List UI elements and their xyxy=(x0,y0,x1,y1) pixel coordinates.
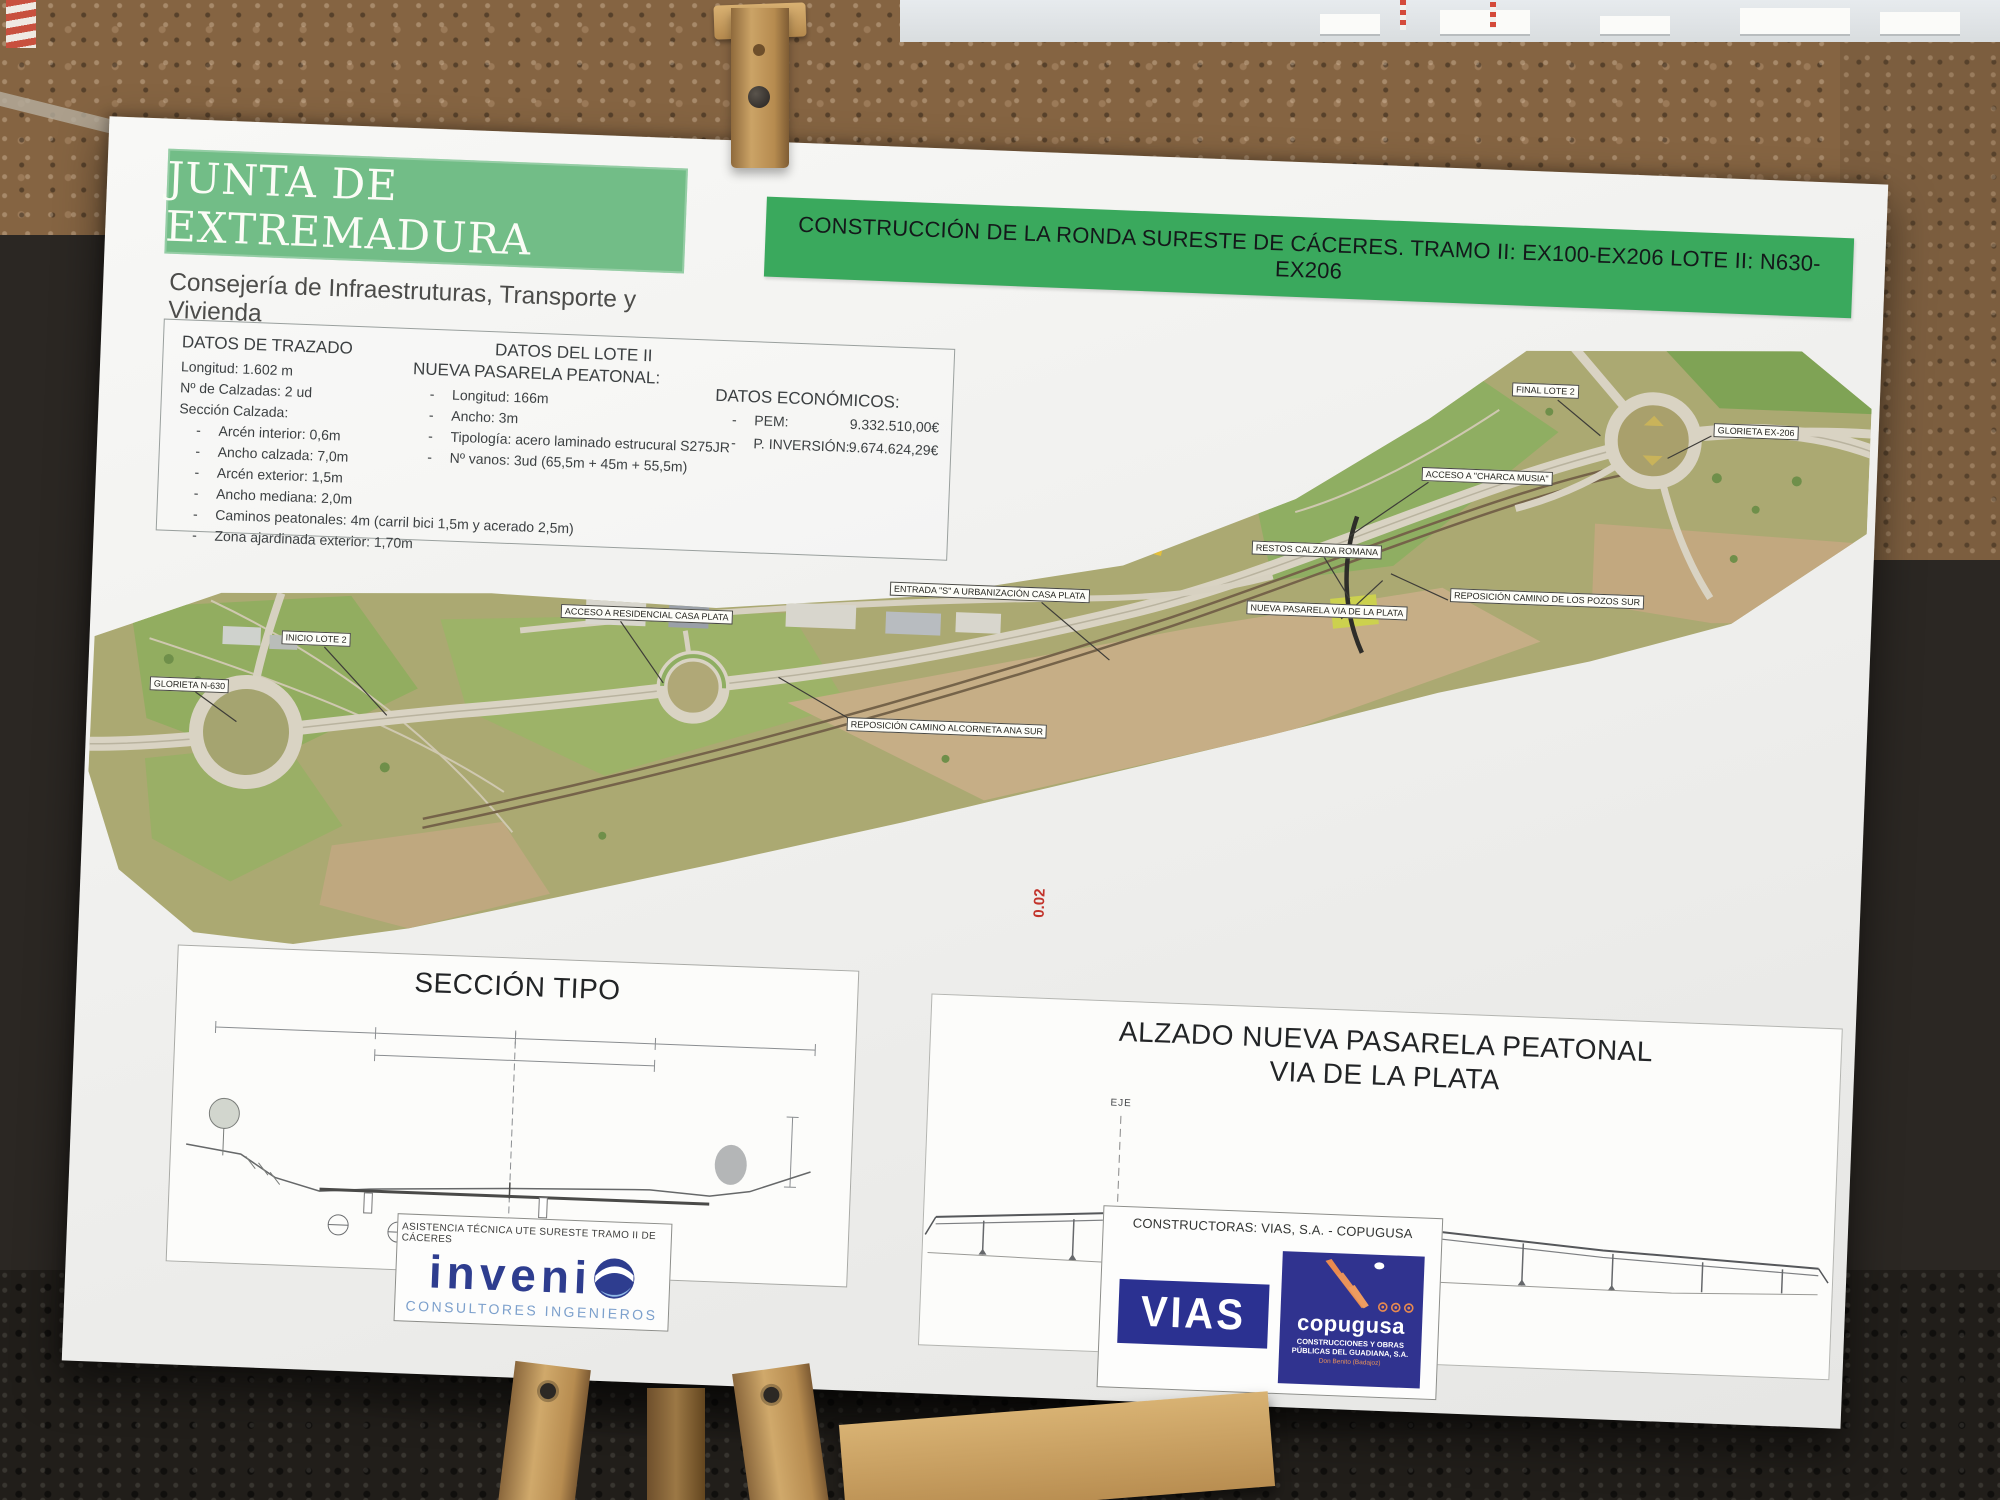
easel-leg-center xyxy=(647,1388,705,1500)
dash: - xyxy=(177,442,218,460)
roundabout-central xyxy=(661,655,725,719)
dash: - xyxy=(412,385,453,403)
econ-value: 9.332.510,00€ xyxy=(849,416,939,435)
slope-annotation: 0.02 xyxy=(1031,888,1049,918)
striped-mast xyxy=(6,0,36,48)
datos-trazado-line: Nº de Calzadas: 2 ud xyxy=(180,379,312,400)
dash: - xyxy=(178,421,219,439)
copugusa-logo: copugusa CONSTRUCCIONES Y OBRAS PÚBLICAS… xyxy=(1278,1251,1425,1388)
copugusa-wordmark: copugusa xyxy=(1297,1312,1406,1338)
dash: - xyxy=(177,463,218,481)
constructoras-box: CONSTRUCTORAS: VIAS, S.A. - COPUGUSA VIA… xyxy=(1096,1205,1443,1400)
constructoras-logos: VIAS copugusa xyxy=(1098,1236,1443,1397)
map-label: INICIO LOTE 2 xyxy=(281,630,351,647)
junta-title: JUNTA DE EXTREMADURA xyxy=(164,152,687,270)
dash: - xyxy=(175,505,216,523)
dash: - xyxy=(714,411,755,429)
item-text: Longitud: 166m xyxy=(452,387,549,407)
wingbolt xyxy=(762,1386,780,1404)
roundabout-ex206 xyxy=(1610,397,1697,484)
copugusa-rays-icon xyxy=(1284,1253,1422,1316)
dash: - xyxy=(176,484,217,502)
datos-trazado-line: Longitud: 1.602 m xyxy=(181,358,294,378)
distant-building xyxy=(1320,14,1380,36)
clamp-hole xyxy=(753,44,765,56)
project-data-box: DATOS DE TRAZADO Longitud: 1.602 m Nº de… xyxy=(156,319,956,561)
map-label: FINAL LOTE 2 xyxy=(1512,382,1579,399)
item-text: Arcén interior: 0,6m xyxy=(218,423,341,444)
item-text: Arcén exterior: 1,5m xyxy=(217,465,344,486)
dash: - xyxy=(174,526,215,544)
copugusa-subtitle: CONSTRUCCIONES Y OBRAS PÚBLICAS DEL GUAD… xyxy=(1292,1337,1409,1359)
crane-icon xyxy=(1490,2,1496,28)
invenio-wordmark: inveni xyxy=(428,1249,637,1301)
copugusa-city: Don Benito (Badajoz) xyxy=(1319,1358,1381,1367)
sky-strip xyxy=(900,0,2000,42)
map-label: GLORIETA N-630 xyxy=(150,676,230,693)
dash: - xyxy=(410,427,451,445)
roundabout-n630 xyxy=(194,680,298,784)
crane-icon xyxy=(1400,0,1406,30)
invenio-letters: inveni xyxy=(428,1251,592,1297)
distant-building xyxy=(1880,12,1960,36)
invenio-tagline: CONSULTORES INGENIEROS xyxy=(405,1298,658,1324)
distant-building xyxy=(1440,10,1530,36)
distant-building xyxy=(1600,16,1670,36)
dash: - xyxy=(411,406,452,424)
vias-logo: VIAS xyxy=(1117,1279,1269,1349)
yellow-detour xyxy=(1082,404,1168,553)
wingbolt xyxy=(539,1382,557,1400)
econ-value: 9.674.624,29€ xyxy=(849,439,939,458)
project-sign-board: GLORIETA N-630 INICIO LOTE 2 ACCESO A RE… xyxy=(62,116,1888,1428)
clamp-knob xyxy=(748,86,770,108)
datos-trazado-title: DATOS DE TRAZADO xyxy=(182,332,354,359)
item-text: Ancho: 3m xyxy=(451,408,519,427)
dash: - xyxy=(409,448,450,466)
item-text: Ancho mediana: 2,0m xyxy=(216,486,353,507)
easel-clamp-post xyxy=(731,8,789,168)
invenio-globe-icon xyxy=(592,1256,638,1302)
dash: - xyxy=(713,434,754,452)
junta-logo-box: JUNTA DE EXTREMADURA xyxy=(164,149,688,274)
vias-wordmark: VIAS xyxy=(1140,1287,1247,1340)
item-text: Ancho calzada: 7,0m xyxy=(217,444,348,465)
invenio-logo-box: ASISTENCIA TÉCNICA UTE SURESTE TRAMO II … xyxy=(394,1213,673,1331)
distant-building xyxy=(1740,8,1850,36)
datos-trazado-line: Sección Calzada: xyxy=(179,400,288,420)
construction-site-photo: GLORIETA N-630 INICIO LOTE 2 ACCESO A RE… xyxy=(0,0,2000,1500)
